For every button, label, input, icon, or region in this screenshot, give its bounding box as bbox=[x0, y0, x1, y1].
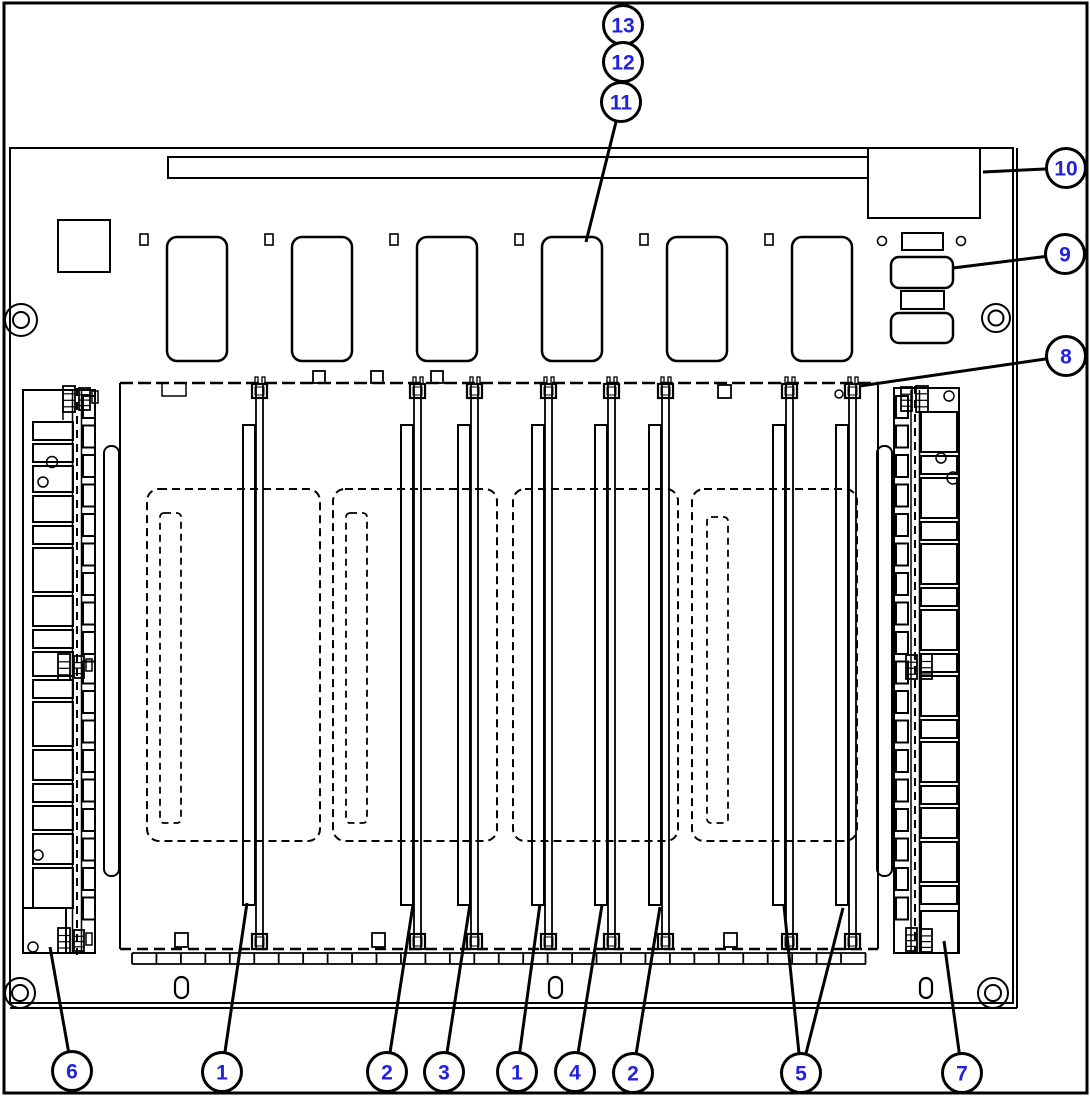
left-strip-cell-2 bbox=[33, 444, 73, 462]
leader-line-callout-3 bbox=[444, 904, 470, 1072]
card-position-5 bbox=[595, 377, 619, 949]
panel-slot-6 bbox=[792, 237, 852, 361]
panel-slot-1 bbox=[167, 237, 227, 361]
panel-screw-hole-right bbox=[957, 237, 966, 246]
connector-block-4 bbox=[891, 313, 953, 343]
card-position-7 bbox=[773, 377, 797, 949]
panel-small-hole-3 bbox=[390, 234, 398, 245]
left-strip-lug-6 bbox=[83, 544, 95, 566]
tick-strip bbox=[132, 953, 866, 964]
right-strip-cell-12 bbox=[921, 786, 957, 804]
left-strip-cell-16 bbox=[33, 868, 73, 908]
leader-line-callout-4 bbox=[575, 905, 602, 1072]
card-clip-bottom bbox=[541, 934, 556, 949]
leader-line-callout-11 bbox=[586, 102, 621, 242]
card-clip-top bbox=[252, 384, 267, 398]
card-rails bbox=[243, 377, 860, 949]
bottom-oval-hole-2 bbox=[549, 977, 562, 998]
callout-number: 11 bbox=[610, 92, 633, 115]
callout-2-13: 2 bbox=[614, 1054, 653, 1093]
right-terminal-strip bbox=[894, 386, 959, 955]
right-strip-bottom-block bbox=[921, 911, 958, 953]
right-strip-cell-15 bbox=[921, 886, 957, 904]
right-strip-cell-8 bbox=[921, 654, 957, 672]
card-clip-bottom bbox=[410, 934, 425, 949]
panel-small-hole-5 bbox=[640, 234, 648, 245]
callout-3-10: 3 bbox=[425, 1053, 464, 1092]
left-terminal-strip bbox=[23, 386, 98, 955]
card-edge bbox=[649, 425, 661, 905]
leader-line-callout-1 bbox=[222, 903, 247, 1072]
left-strip-cell-11 bbox=[33, 702, 73, 746]
card-edge bbox=[401, 425, 413, 905]
leader-line-callout-2 bbox=[387, 905, 413, 1072]
callout-number: 6 bbox=[66, 1061, 78, 1084]
connector-block-3 bbox=[901, 291, 944, 309]
right-strip-lug-12 bbox=[896, 721, 908, 743]
right-strip-lug-14 bbox=[896, 780, 908, 802]
right-strip-lug-16 bbox=[896, 839, 908, 861]
panel-slot-4 bbox=[542, 237, 602, 361]
left-strip-cell-13 bbox=[33, 784, 73, 802]
card-position-3 bbox=[458, 377, 482, 949]
left-strip-hole-3 bbox=[33, 850, 43, 860]
callout-6-7: 6 bbox=[53, 1052, 92, 1091]
callout-number: 10 bbox=[1054, 158, 1077, 181]
cage-top-tab-3 bbox=[431, 371, 443, 383]
card-edge bbox=[243, 425, 255, 905]
callout-number: 2 bbox=[381, 1062, 393, 1085]
left-strip-bottom-block bbox=[23, 908, 66, 953]
card-edge bbox=[836, 425, 848, 905]
callout-4-12: 4 bbox=[556, 1053, 595, 1092]
card-edge bbox=[458, 425, 470, 905]
right-strip-lug-5 bbox=[896, 514, 908, 536]
callout-12-2: 12 bbox=[604, 43, 643, 82]
right-strip-lug-9 bbox=[896, 632, 908, 654]
card-clip-top bbox=[658, 384, 673, 398]
mounting-hole-inner-4 bbox=[985, 985, 1001, 1001]
right-strip-clamp-top-block-2 bbox=[916, 386, 928, 412]
left-strip-lug-7 bbox=[83, 573, 95, 595]
card-outlines-dashed bbox=[147, 489, 857, 841]
left-strip-hole-2 bbox=[38, 477, 48, 487]
card-outline-4 bbox=[692, 489, 857, 841]
left-strip-cell-14 bbox=[33, 806, 73, 830]
left-strip-lug-9 bbox=[83, 632, 95, 654]
leader-line-callout-5-2 bbox=[801, 908, 843, 1073]
left-strip-lug-11 bbox=[83, 691, 95, 713]
callout-number: 4 bbox=[569, 1062, 581, 1085]
card-position-1 bbox=[243, 377, 267, 949]
cage-right-handle-slot bbox=[877, 446, 892, 876]
panel-slot-2 bbox=[292, 237, 352, 361]
card-clip-top bbox=[541, 384, 556, 398]
callout-8-6: 8 bbox=[1047, 337, 1086, 376]
card-connector-outline-1 bbox=[160, 513, 181, 823]
callout-10-4: 10 bbox=[1047, 149, 1086, 188]
card-clip-top bbox=[410, 384, 425, 398]
callout-number: 1 bbox=[511, 1062, 523, 1085]
card-clip-top bbox=[604, 384, 619, 398]
callout-number: 8 bbox=[1060, 346, 1072, 369]
card-clip-bottom bbox=[658, 934, 673, 949]
left-strip-cell-9 bbox=[33, 652, 73, 676]
right-strip-clamp-bottom-block-2 bbox=[921, 929, 932, 952]
right-strip-hole-1 bbox=[944, 391, 954, 401]
left-strip-lug-14 bbox=[83, 780, 95, 802]
right-strip-cell-4 bbox=[921, 522, 957, 540]
leader-line-callout-1 bbox=[517, 904, 540, 1072]
left-strip-cell-10 bbox=[33, 680, 73, 698]
mounting-hole-outer-2 bbox=[982, 304, 1010, 332]
callout-5-14: 5 bbox=[782, 1054, 821, 1093]
right-strip-lug-4 bbox=[896, 485, 908, 507]
connector-block-1 bbox=[902, 233, 943, 250]
callout-number: 1 bbox=[216, 1062, 228, 1085]
card-connector-outline-2 bbox=[346, 513, 367, 823]
left-strip-cell-7 bbox=[33, 596, 73, 626]
card-edge bbox=[773, 425, 785, 905]
card-edge bbox=[595, 425, 607, 905]
card-clip-bottom bbox=[467, 934, 482, 949]
right-strip-cell-9 bbox=[921, 676, 957, 716]
left-strip-lug-8 bbox=[83, 603, 95, 625]
left-strip-clamp-bottom-block-2 bbox=[74, 930, 84, 951]
cage-bottom-tab-2 bbox=[372, 933, 385, 947]
right-strip-lug-17 bbox=[896, 868, 908, 890]
left-strip-lug-17 bbox=[83, 868, 95, 890]
parts-diagram-page: 1312111098612314257 bbox=[0, 0, 1090, 1096]
callout-number: 7 bbox=[956, 1063, 968, 1086]
top-right-cover-plate bbox=[868, 148, 980, 218]
bottom-oval-hole-1 bbox=[175, 977, 188, 998]
right-strip-cell-11 bbox=[921, 742, 957, 782]
right-strip-cell-10 bbox=[921, 720, 957, 738]
right-strip-cell-6 bbox=[921, 588, 957, 606]
leader-line-callout-8 bbox=[860, 356, 1066, 386]
left-strip-lug-4 bbox=[83, 485, 95, 507]
left-strip-cell-1 bbox=[33, 422, 73, 440]
left-strip-clamp-bottom-block-1 bbox=[58, 928, 70, 953]
card-outline-1 bbox=[147, 489, 320, 841]
left-strip-lug-3 bbox=[83, 455, 95, 477]
left-strip-lug-18 bbox=[83, 898, 95, 920]
right-strip-cell-2 bbox=[921, 456, 957, 474]
left-strip-lug-1 bbox=[83, 396, 95, 418]
left-strip-cell-4 bbox=[33, 496, 73, 522]
right-strip-lug-2 bbox=[896, 426, 908, 448]
callout-11-3: 11 bbox=[602, 83, 641, 122]
card-connector-outline-4 bbox=[707, 517, 728, 823]
top-vent-bar bbox=[168, 157, 868, 178]
callout-number: 3 bbox=[438, 1062, 450, 1085]
mounting-hole-inner-3 bbox=[12, 985, 28, 1001]
panel-slot-3 bbox=[417, 237, 477, 361]
right-strip-lug-7 bbox=[896, 573, 908, 595]
card-position-4 bbox=[532, 377, 556, 949]
left-strip-cell-5 bbox=[33, 526, 73, 544]
right-strip-lug-11 bbox=[896, 691, 908, 713]
mounting-hole-inner-1 bbox=[13, 312, 29, 328]
right-strip-lug-8 bbox=[896, 603, 908, 625]
cage-top-tab-1 bbox=[313, 371, 325, 383]
leader-line-callout-2 bbox=[633, 907, 660, 1073]
left-strip-clamp-top-block-2 bbox=[79, 388, 90, 410]
panel-slot-5 bbox=[667, 237, 727, 361]
left-strip-clamp-bottom-stub bbox=[86, 933, 92, 945]
panel-small-hole-4 bbox=[515, 234, 523, 245]
cage-left-handle-slot bbox=[104, 446, 119, 876]
panel-small-hole-1 bbox=[140, 234, 148, 245]
panel-screw-hole-left bbox=[878, 237, 887, 246]
parts-diagram-canvas: 1312111098612314257 bbox=[0, 0, 1090, 1096]
card-clip-bottom bbox=[845, 934, 860, 949]
callout-1-8: 1 bbox=[203, 1053, 242, 1092]
cage-top-tab-2 bbox=[371, 371, 383, 383]
callout-number: 13 bbox=[611, 15, 634, 38]
right-strip-lug-15 bbox=[896, 809, 908, 831]
right-strip-lug-1 bbox=[896, 396, 908, 418]
left-strip-lug-2 bbox=[83, 426, 95, 448]
left-strip-lug-5 bbox=[83, 514, 95, 536]
right-strip-lug-18 bbox=[896, 898, 908, 920]
card-position-6 bbox=[649, 377, 673, 949]
right-strip-lug-6 bbox=[896, 544, 908, 566]
left-strip-cell-6 bbox=[33, 548, 73, 592]
cage-bottom-tab-1 bbox=[175, 933, 188, 947]
top-panel bbox=[58, 148, 980, 361]
top-left-square-cutout bbox=[58, 220, 110, 272]
cage-bottom-tab-3 bbox=[724, 933, 737, 947]
card-clip-bottom bbox=[252, 934, 267, 949]
right-strip-hole-2 bbox=[936, 453, 946, 463]
card-edge bbox=[532, 425, 544, 905]
callout-number: 2 bbox=[627, 1063, 639, 1086]
left-strip-lug-12 bbox=[83, 721, 95, 743]
callout-13-1: 13 bbox=[604, 6, 643, 45]
mounting-holes bbox=[5, 304, 1010, 1008]
right-strip-cell-13 bbox=[921, 808, 957, 838]
callout-1-11: 1 bbox=[498, 1053, 537, 1092]
callout-number: 5 bbox=[795, 1063, 807, 1086]
mounting-hole-inner-2 bbox=[989, 311, 1004, 326]
bottom-oval-hole-3 bbox=[920, 978, 932, 998]
left-strip-bottom-hole bbox=[28, 942, 38, 952]
left-strip-lug-13 bbox=[83, 750, 95, 772]
right-strip-lug-3 bbox=[896, 455, 908, 477]
cage-top-clip-plain bbox=[718, 385, 731, 398]
card-clip-top bbox=[845, 384, 860, 398]
left-strip-cell-8 bbox=[33, 630, 73, 648]
callout-number: 9 bbox=[1059, 244, 1071, 267]
card-position-8 bbox=[836, 377, 860, 949]
card-position-2 bbox=[401, 377, 425, 949]
right-strip-lug-13 bbox=[896, 750, 908, 772]
card-clip-top bbox=[467, 384, 482, 398]
card-outline-2 bbox=[333, 489, 497, 841]
callout-2-9: 2 bbox=[368, 1053, 407, 1092]
right-strip-cell-14 bbox=[921, 842, 957, 882]
cage-top-screw-hole bbox=[835, 390, 843, 398]
left-strip-cell-12 bbox=[33, 750, 73, 780]
card-clip-bottom bbox=[604, 934, 619, 949]
cage-top-left-notch bbox=[162, 384, 186, 396]
left-strip-lug-15 bbox=[83, 809, 95, 831]
connector-block-2 bbox=[891, 257, 953, 288]
right-strip-cell-5 bbox=[921, 544, 957, 584]
callout-number: 12 bbox=[611, 52, 634, 75]
right-strip-cell-7 bbox=[921, 610, 957, 650]
callout-9-5: 9 bbox=[1046, 235, 1085, 274]
callout-7-15: 7 bbox=[943, 1054, 982, 1093]
panel-small-hole-2 bbox=[265, 234, 273, 245]
right-strip-cell-1 bbox=[921, 412, 957, 452]
left-strip-lug-16 bbox=[83, 839, 95, 861]
card-clip-top bbox=[782, 384, 797, 398]
bottom-oval-holes bbox=[175, 977, 932, 998]
panel-small-hole-6 bbox=[765, 234, 773, 245]
